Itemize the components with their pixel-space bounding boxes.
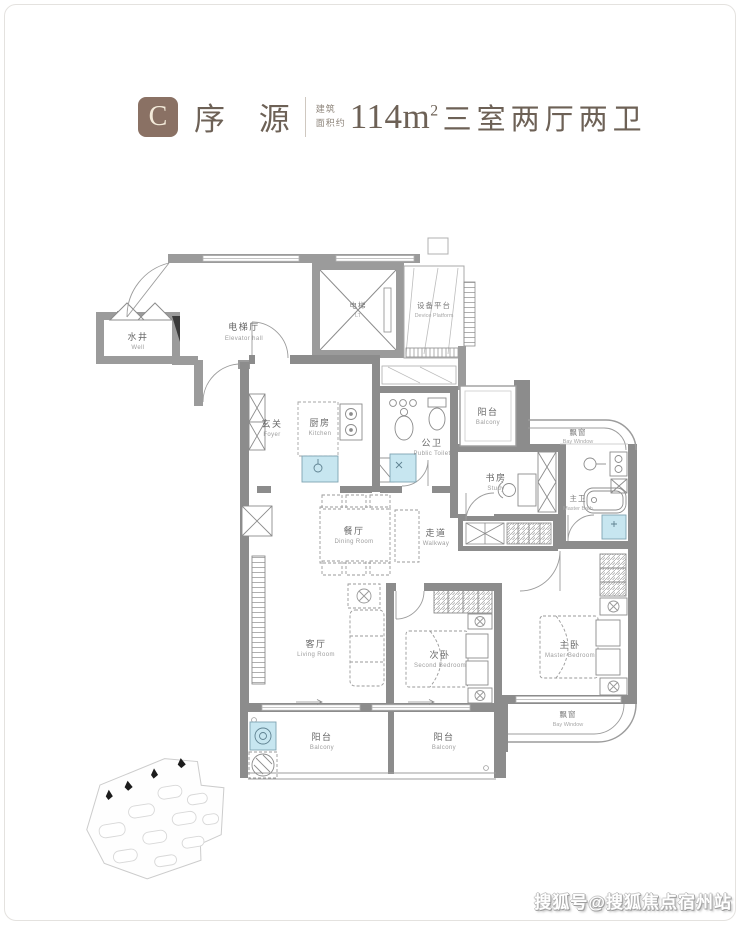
toilet-tank — [428, 398, 446, 407]
floor-plan: 水井 Well 电梯厅 Elevator hall 电梯 LT 设备平台 Dev… — [0, 0, 740, 925]
label-foyer-zh: 玄关 — [261, 418, 282, 429]
desk — [518, 474, 536, 506]
label-bay-bottom-zh: 飘窗 — [560, 709, 577, 719]
stove — [340, 404, 362, 440]
site-key-plan — [78, 750, 236, 887]
label-master-bedroom-en: Master Bedroom — [545, 653, 595, 659]
label-balcony-right-zh: 阳台 — [433, 731, 454, 742]
label-study-en: Study — [487, 486, 504, 492]
label-bay-bottom-en: Bay Window — [553, 722, 584, 728]
washbasin — [395, 416, 413, 440]
sofa — [350, 610, 384, 686]
balcony-fixtures — [249, 722, 277, 778]
unit-walls — [240, 355, 637, 778]
label-master-bedroom-zh: 主卧 — [559, 639, 580, 650]
label-living-zh: 客厅 — [305, 638, 326, 649]
label-balcony-top-en: Balcony — [476, 420, 500, 426]
label-public-toilet-zh: 公卫 — [421, 438, 442, 448]
pillow — [596, 649, 620, 675]
label-kitchen-en: Kitchen — [309, 431, 332, 437]
washing-machine — [250, 722, 276, 750]
corridor-wardrobe — [466, 523, 551, 544]
label-study-zh: 书房 — [485, 472, 506, 483]
label-walkway-en: Walkway — [423, 541, 450, 547]
label-master-bath-en: Master Bath — [563, 506, 593, 512]
label-bay-top-en: Bay Window — [563, 439, 594, 445]
label-elevator-zh: 电梯 — [350, 300, 367, 310]
pillow — [466, 634, 488, 658]
toilet — [429, 408, 445, 430]
label-dining-en: Dining Room — [334, 539, 373, 545]
label-balcony-left-zh: 阳台 — [311, 731, 332, 742]
label-elevator-hall-en: Elevator hall — [225, 336, 263, 342]
label-kitchen-zh: 厨房 — [309, 417, 330, 428]
label-elevator-hall-zh: 电梯厅 — [228, 321, 260, 332]
label-balcony-left-en: Balcony — [310, 745, 334, 751]
label-foyer-en: Foyer — [263, 432, 280, 438]
label-device-platform-zh: 设备平台 — [417, 300, 451, 310]
label-balcony-top-zh: 阳台 — [477, 406, 498, 417]
pillow — [596, 620, 620, 646]
round-basin — [584, 458, 596, 470]
watermark: 搜狐号@搜狐焦点宿州站 — [534, 888, 732, 913]
elevator-shaft — [312, 262, 404, 358]
second-bedroom-furniture — [406, 589, 492, 703]
label-elevator-en: LT — [355, 313, 362, 319]
label-balcony-right-en: Balcony — [432, 745, 456, 751]
label-public-toilet-en: Public Toilet — [413, 451, 450, 457]
label-walkway-zh: 走道 — [425, 527, 446, 538]
pillow — [466, 661, 488, 685]
study-wardrobe — [538, 452, 556, 512]
label-well-en: Well — [131, 345, 144, 351]
label-master-bath-zh: 主卫 — [570, 493, 587, 503]
shower-tray — [390, 454, 416, 482]
label-bay-top-zh: 飘窗 — [570, 427, 587, 437]
study-furniture — [498, 452, 556, 512]
balcony-rails — [248, 718, 496, 779]
label-dining-zh: 餐厅 — [343, 525, 364, 536]
label-second-bedroom-zh: 次卧 — [429, 649, 450, 660]
label-second-bedroom-en: Second Bedroom — [414, 663, 466, 669]
label-device-platform-en: Device Platform — [415, 313, 454, 319]
master-bath-fixtures — [584, 452, 627, 539]
label-living-en: Living Room — [297, 652, 335, 658]
kitchen-sink — [302, 456, 338, 482]
dining-furniture — [320, 495, 419, 575]
tv-cabinet — [252, 556, 265, 684]
label-well-zh: 水井 — [127, 331, 148, 342]
master-bedroom-furniture — [540, 554, 627, 695]
